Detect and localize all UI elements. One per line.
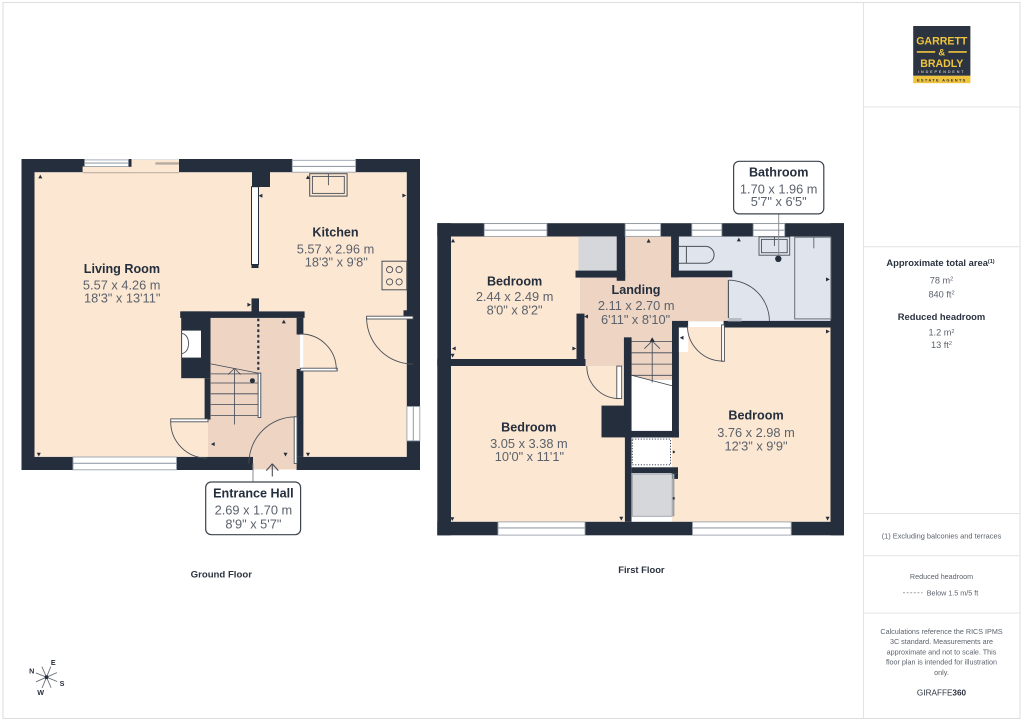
svg-text:Reduced headroom: Reduced headroom	[910, 572, 973, 581]
svg-text:Bedroom: Bedroom	[501, 421, 556, 435]
svg-text:2.69 x 1.70 m: 2.69 x 1.70 m	[215, 502, 293, 517]
svg-text:18'3" x 13'11": 18'3" x 13'11"	[84, 290, 160, 305]
svg-text:10'0" x 11'1": 10'0" x 11'1"	[495, 449, 564, 464]
svg-text:approximate and not to scale.: approximate and not to scale. This	[887, 647, 997, 656]
svg-text:Bathroom: Bathroom	[749, 166, 808, 180]
svg-text:GARRETT: GARRETT	[916, 35, 968, 47]
svg-text:78 m2: 78 m2	[930, 275, 954, 285]
svg-text:3C standard. Measurements are: 3C standard. Measurements are	[890, 637, 993, 646]
svg-text:8'9" x 5'7": 8'9" x 5'7"	[225, 516, 281, 531]
svg-text:INDEPENDENT: INDEPENDENT	[918, 70, 965, 74]
svg-text:N: N	[29, 667, 34, 676]
svg-text:only.: only.	[934, 668, 949, 677]
svg-text:13 ft2: 13 ft2	[931, 340, 952, 350]
svg-text:18'3" x 9'8": 18'3" x 9'8"	[305, 255, 368, 270]
svg-text:1.2 m2: 1.2 m2	[928, 328, 954, 338]
svg-text:First Floor: First Floor	[618, 564, 665, 575]
svg-text:6'11" x 8'10": 6'11" x 8'10"	[601, 312, 670, 327]
svg-text:Below 1.5 m/5 ft: Below 1.5 m/5 ft	[927, 589, 979, 598]
svg-text:Approximate total area(1): Approximate total area(1)	[886, 257, 994, 268]
svg-text:ESTATE AGENTS: ESTATE AGENTS	[917, 77, 967, 82]
svg-text:(1) Excluding balconies and te: (1) Excluding balconies and terraces	[882, 531, 1002, 540]
svg-text:12'3" x 9'9": 12'3" x 9'9"	[724, 438, 787, 453]
svg-text:Living Room: Living Room	[84, 262, 160, 276]
svg-text:E: E	[51, 658, 56, 667]
svg-text:&: &	[938, 47, 945, 58]
svg-text:Bedroom: Bedroom	[487, 275, 542, 289]
svg-text:BRADLY: BRADLY	[920, 58, 963, 70]
svg-text:Entrance Hall: Entrance Hall	[213, 487, 294, 501]
svg-text:840 ft2: 840 ft2	[928, 290, 954, 300]
svg-text:Landing: Landing	[612, 283, 661, 297]
svg-text:W: W	[37, 688, 44, 697]
svg-text:8'0" x 8'2": 8'0" x 8'2"	[487, 302, 543, 317]
svg-text:2.11 x 2.70 m: 2.11 x 2.70 m	[598, 298, 675, 313]
svg-text:floor plan is intended for ill: floor plan is intended for illustration	[886, 658, 997, 667]
svg-text:Calculations reference the RIC: Calculations reference the RICS IPMS	[880, 627, 1002, 636]
svg-text:Ground Floor: Ground Floor	[191, 569, 253, 580]
svg-text:5'7" x 6'5": 5'7" x 6'5"	[751, 194, 807, 209]
svg-text:GIRAFFE360: GIRAFFE360	[917, 689, 967, 698]
svg-text:Reduced headroom: Reduced headroom	[898, 311, 986, 322]
svg-text:Bedroom: Bedroom	[728, 409, 783, 423]
svg-text:S: S	[60, 679, 65, 688]
svg-text:Kitchen: Kitchen	[312, 226, 358, 240]
